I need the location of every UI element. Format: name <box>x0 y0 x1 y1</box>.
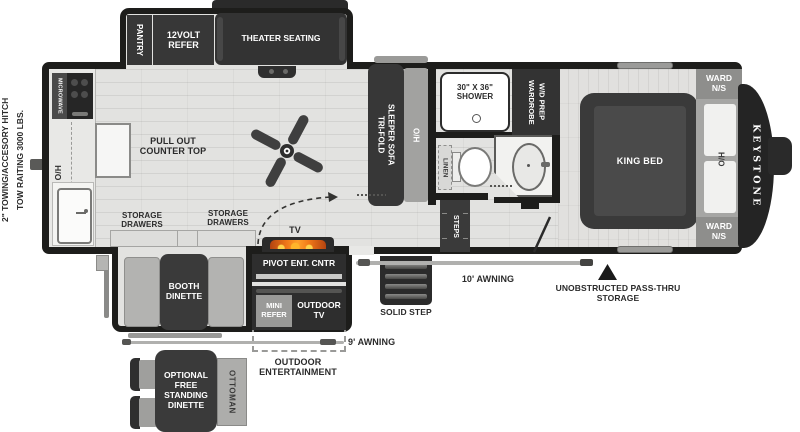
range-knobs <box>72 112 88 116</box>
drawer-divider-2 <box>197 231 198 246</box>
booth-dinette-label: BOOTH DINETTE <box>164 282 204 302</box>
burner-1 <box>71 79 78 86</box>
step-line-4 <box>463 238 468 239</box>
step-line-1 <box>442 213 447 214</box>
bedroom-overhead: H/O <box>708 138 732 180</box>
sofa-label-line2: SLEEPER SOFA <box>387 104 396 165</box>
wardrobe-ns-top: WARD N/S <box>696 69 742 99</box>
drawer-divider-1 <box>177 231 178 246</box>
outdoor-kitchen-box: MINI REFER OUTDOOR TV <box>252 286 346 330</box>
vanity-faucet-icon <box>541 162 550 167</box>
wardrobe-label-line2: W/D PREP <box>537 83 546 120</box>
king-bed-label: KING BED <box>617 156 663 166</box>
vanity-drain-icon <box>527 164 530 167</box>
theater-cupholder-2 <box>283 69 288 74</box>
sofa-label-line1: TRI-FOLD <box>376 116 385 153</box>
bath-wall-toilet-bottom <box>436 193 488 200</box>
range-stove <box>67 73 93 119</box>
sofa-overhead-cabinet: O/H <box>404 68 428 202</box>
refrigerator-12v: 12VOLT REFER <box>153 15 214 65</box>
wardrobe-label-line1: WARDROBE <box>526 80 535 125</box>
shower-label: 30" X 36" SHOWER <box>444 84 506 102</box>
awning-9-cap-left <box>122 339 131 345</box>
ward-ns-bottom-label: WARD N/S <box>702 222 736 242</box>
theater-seating-label: THEATER SEATING <box>241 34 320 44</box>
burner-2 <box>81 79 88 86</box>
pivot-ent-shelf <box>256 274 342 279</box>
storage-drawers-label-2: STORAGE DRAWERS <box>196 210 260 228</box>
faucet-base-icon <box>84 209 88 213</box>
step-line-2 <box>463 213 468 214</box>
theater-footrest <box>258 66 296 78</box>
wall-handle-top <box>617 62 673 69</box>
awning-9-bar <box>122 341 344 344</box>
theater-armrest-left <box>217 17 223 61</box>
shower-drain-icon <box>472 114 481 123</box>
pull-out-counter-label: PULL OUT COUNTER TOP <box>130 136 216 156</box>
tow-hitch-note-line2: TOW RAITING 3000 LBS. <box>15 76 30 244</box>
sofa-oh-label: O/H <box>411 128 420 142</box>
pass-thru-label: UNOBSTRUCTED PASS-THRU STORAGE <box>555 284 681 303</box>
toilet-bowl <box>458 147 492 187</box>
dinette-bench-right <box>208 257 244 327</box>
slide-skirt <box>128 333 222 338</box>
awning-10-cap-right <box>580 259 593 266</box>
mini-refer-label: MINI REFER <box>259 302 289 319</box>
wall-handle-bottom <box>617 246 673 253</box>
outdoor-entertainment-label: OUTDOOR ENTERTAINMENT <box>247 357 349 377</box>
linen-cabinet: LINEN <box>438 145 452 190</box>
awning-10-bar <box>356 261 592 265</box>
tow-hitch-note: 2" TOWING/ACCESORY HITCH TOW RAITING 300… <box>0 76 30 244</box>
steps-label: STEPS <box>451 215 459 238</box>
rv-floorplan: 2" TOWING/ACCESORY HITCH TOW RAITING 300… <box>0 0 800 432</box>
optional-dinette-label: OPTIONAL FREE STANDING DINETTE <box>159 371 213 410</box>
theater-seating: THEATER SEATING <box>215 13 347 65</box>
refer-label: 12VOLT REFER <box>162 30 206 51</box>
storage-drawer-cabinets <box>110 230 256 247</box>
awning-9-label: 9' AWNING <box>348 337 408 347</box>
optional-dinette-table: OPTIONAL FREE STANDING DINETTE <box>155 350 217 432</box>
tri-fold-sofa: TRI-FOLD SLEEPER SOFA <box>368 64 404 206</box>
awning-9-cap-right <box>320 339 336 345</box>
pantry-label: PANTRY <box>135 24 144 56</box>
fireplace <box>262 237 334 252</box>
ottoman-label: OTTOMAN <box>228 370 237 414</box>
kitchen-oh-label: O/H <box>54 165 64 180</box>
outdoor-tv-label: OUTDOOR TV <box>297 301 341 321</box>
pass-thru-triangle <box>598 264 617 280</box>
king-bed: KING BED <box>580 93 698 229</box>
shower: 30" X 36" SHOWER <box>440 72 510 132</box>
step-tread-4 <box>385 294 427 299</box>
solid-step-label: SOLID STEP <box>371 308 441 318</box>
fireplace-flames-icon <box>270 240 326 249</box>
bath-door-stub <box>521 202 539 209</box>
king-bed-mattress: KING BED <box>594 106 686 216</box>
microwave-label: MICROWAVE <box>56 78 62 114</box>
storage-drawers-label-1: STORAGE DRAWERS <box>110 212 174 230</box>
bath-wall-right <box>552 135 560 200</box>
pivot-ent-label: PIVOT ENT. CNTR <box>252 259 346 269</box>
linen-label: LINEN <box>442 158 449 178</box>
awning-10-label: 10' AWNING <box>450 274 526 284</box>
pivot-ent-center: PIVOT ENT. CNTR <box>252 254 346 282</box>
wardrobe-ns-bottom: WARD N/S <box>696 217 742 247</box>
step-line-3 <box>442 238 447 239</box>
theater-armrest-right <box>339 17 345 61</box>
keystone-logo: KEYSTONE <box>751 124 762 208</box>
entry-door-opening <box>349 246 374 255</box>
ward-ns-top-label: WARD N/S <box>702 74 736 94</box>
sofa-slide-topper <box>374 56 428 63</box>
microwave: MICROWAVE <box>52 73 67 119</box>
burner-3 <box>71 91 78 98</box>
utility-door <box>96 255 109 271</box>
kitchen-sink <box>57 188 92 244</box>
tv-label: TV <box>280 225 310 235</box>
wardrobe-wd-prep: WARDROBE W/D PREP <box>512 69 560 135</box>
awning-10-cap-left <box>358 259 370 266</box>
dinette-bench-left <box>124 257 160 327</box>
outdoor-tv: OUTDOOR TV <box>294 295 344 327</box>
outdoor-box-trim <box>256 289 342 293</box>
hitch-pin <box>768 137 792 175</box>
pull-out-counter <box>95 123 131 178</box>
step-tread-2 <box>385 274 427 279</box>
burner-4 <box>81 91 88 98</box>
mini-refer: MINI REFER <box>256 295 292 327</box>
bedroom-ho-label: H/O <box>716 152 725 167</box>
theater-cupholder-1 <box>269 69 274 74</box>
booth-dinette-table: BOOTH DINETTE <box>160 254 208 330</box>
ottoman: OTTOMAN <box>217 358 247 426</box>
interior-steps: STEPS <box>440 200 470 252</box>
step-tread-3 <box>385 284 427 289</box>
vanity-sink <box>512 143 546 191</box>
tow-hitch-note-line1: 2" TOWING/ACCESORY HITCH <box>0 76 15 244</box>
pantry: PANTRY <box>127 15 152 65</box>
